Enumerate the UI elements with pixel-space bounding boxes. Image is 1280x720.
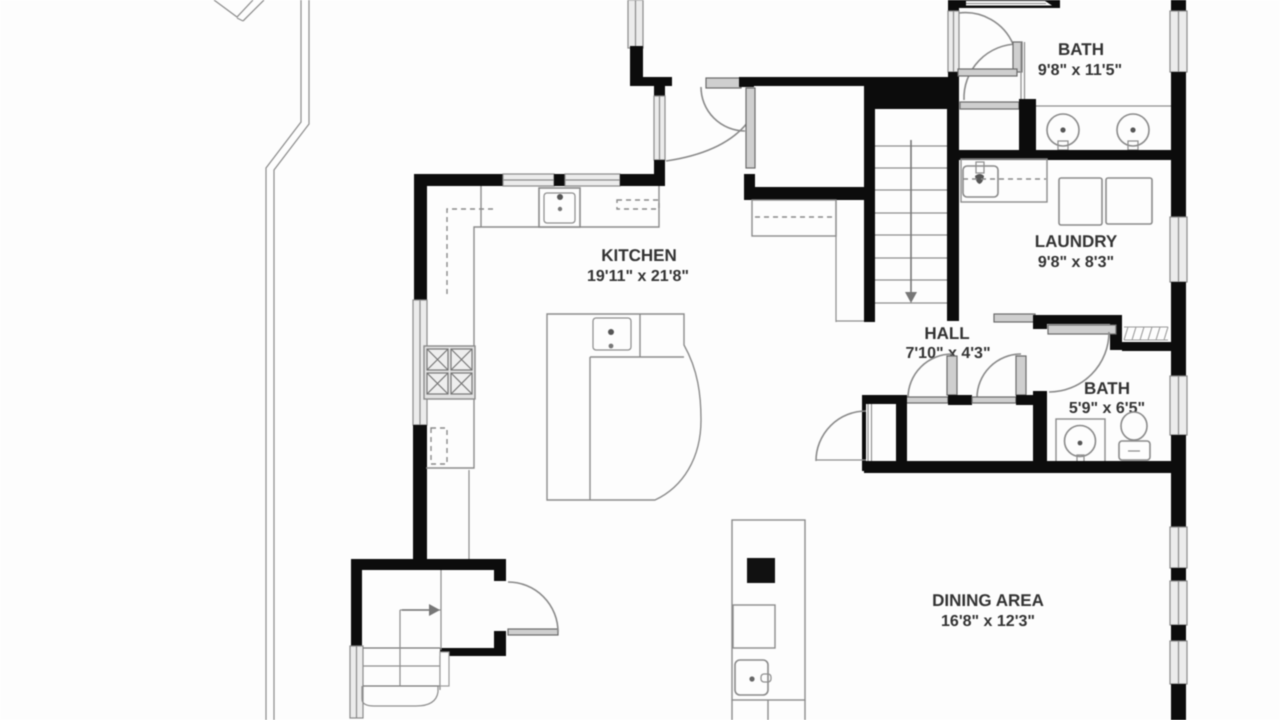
svg-text:19'11" x 21'8": 19'11" x 21'8" bbox=[587, 268, 689, 285]
svg-text:9'8" x 8'3": 9'8" x 8'3" bbox=[1038, 254, 1114, 271]
svg-text:LAUNDRY: LAUNDRY bbox=[1035, 232, 1118, 251]
svg-text:BATH: BATH bbox=[1058, 40, 1104, 59]
svg-text:HALL: HALL bbox=[924, 324, 969, 343]
svg-text:DINING AREA: DINING AREA bbox=[932, 591, 1044, 610]
svg-text:9'8" x 11'5": 9'8" x 11'5" bbox=[1038, 62, 1122, 79]
svg-text:16'8" x 12'3": 16'8" x 12'3" bbox=[941, 613, 1035, 630]
svg-text:KITCHEN: KITCHEN bbox=[601, 246, 677, 265]
svg-text:BATH: BATH bbox=[1084, 379, 1130, 398]
